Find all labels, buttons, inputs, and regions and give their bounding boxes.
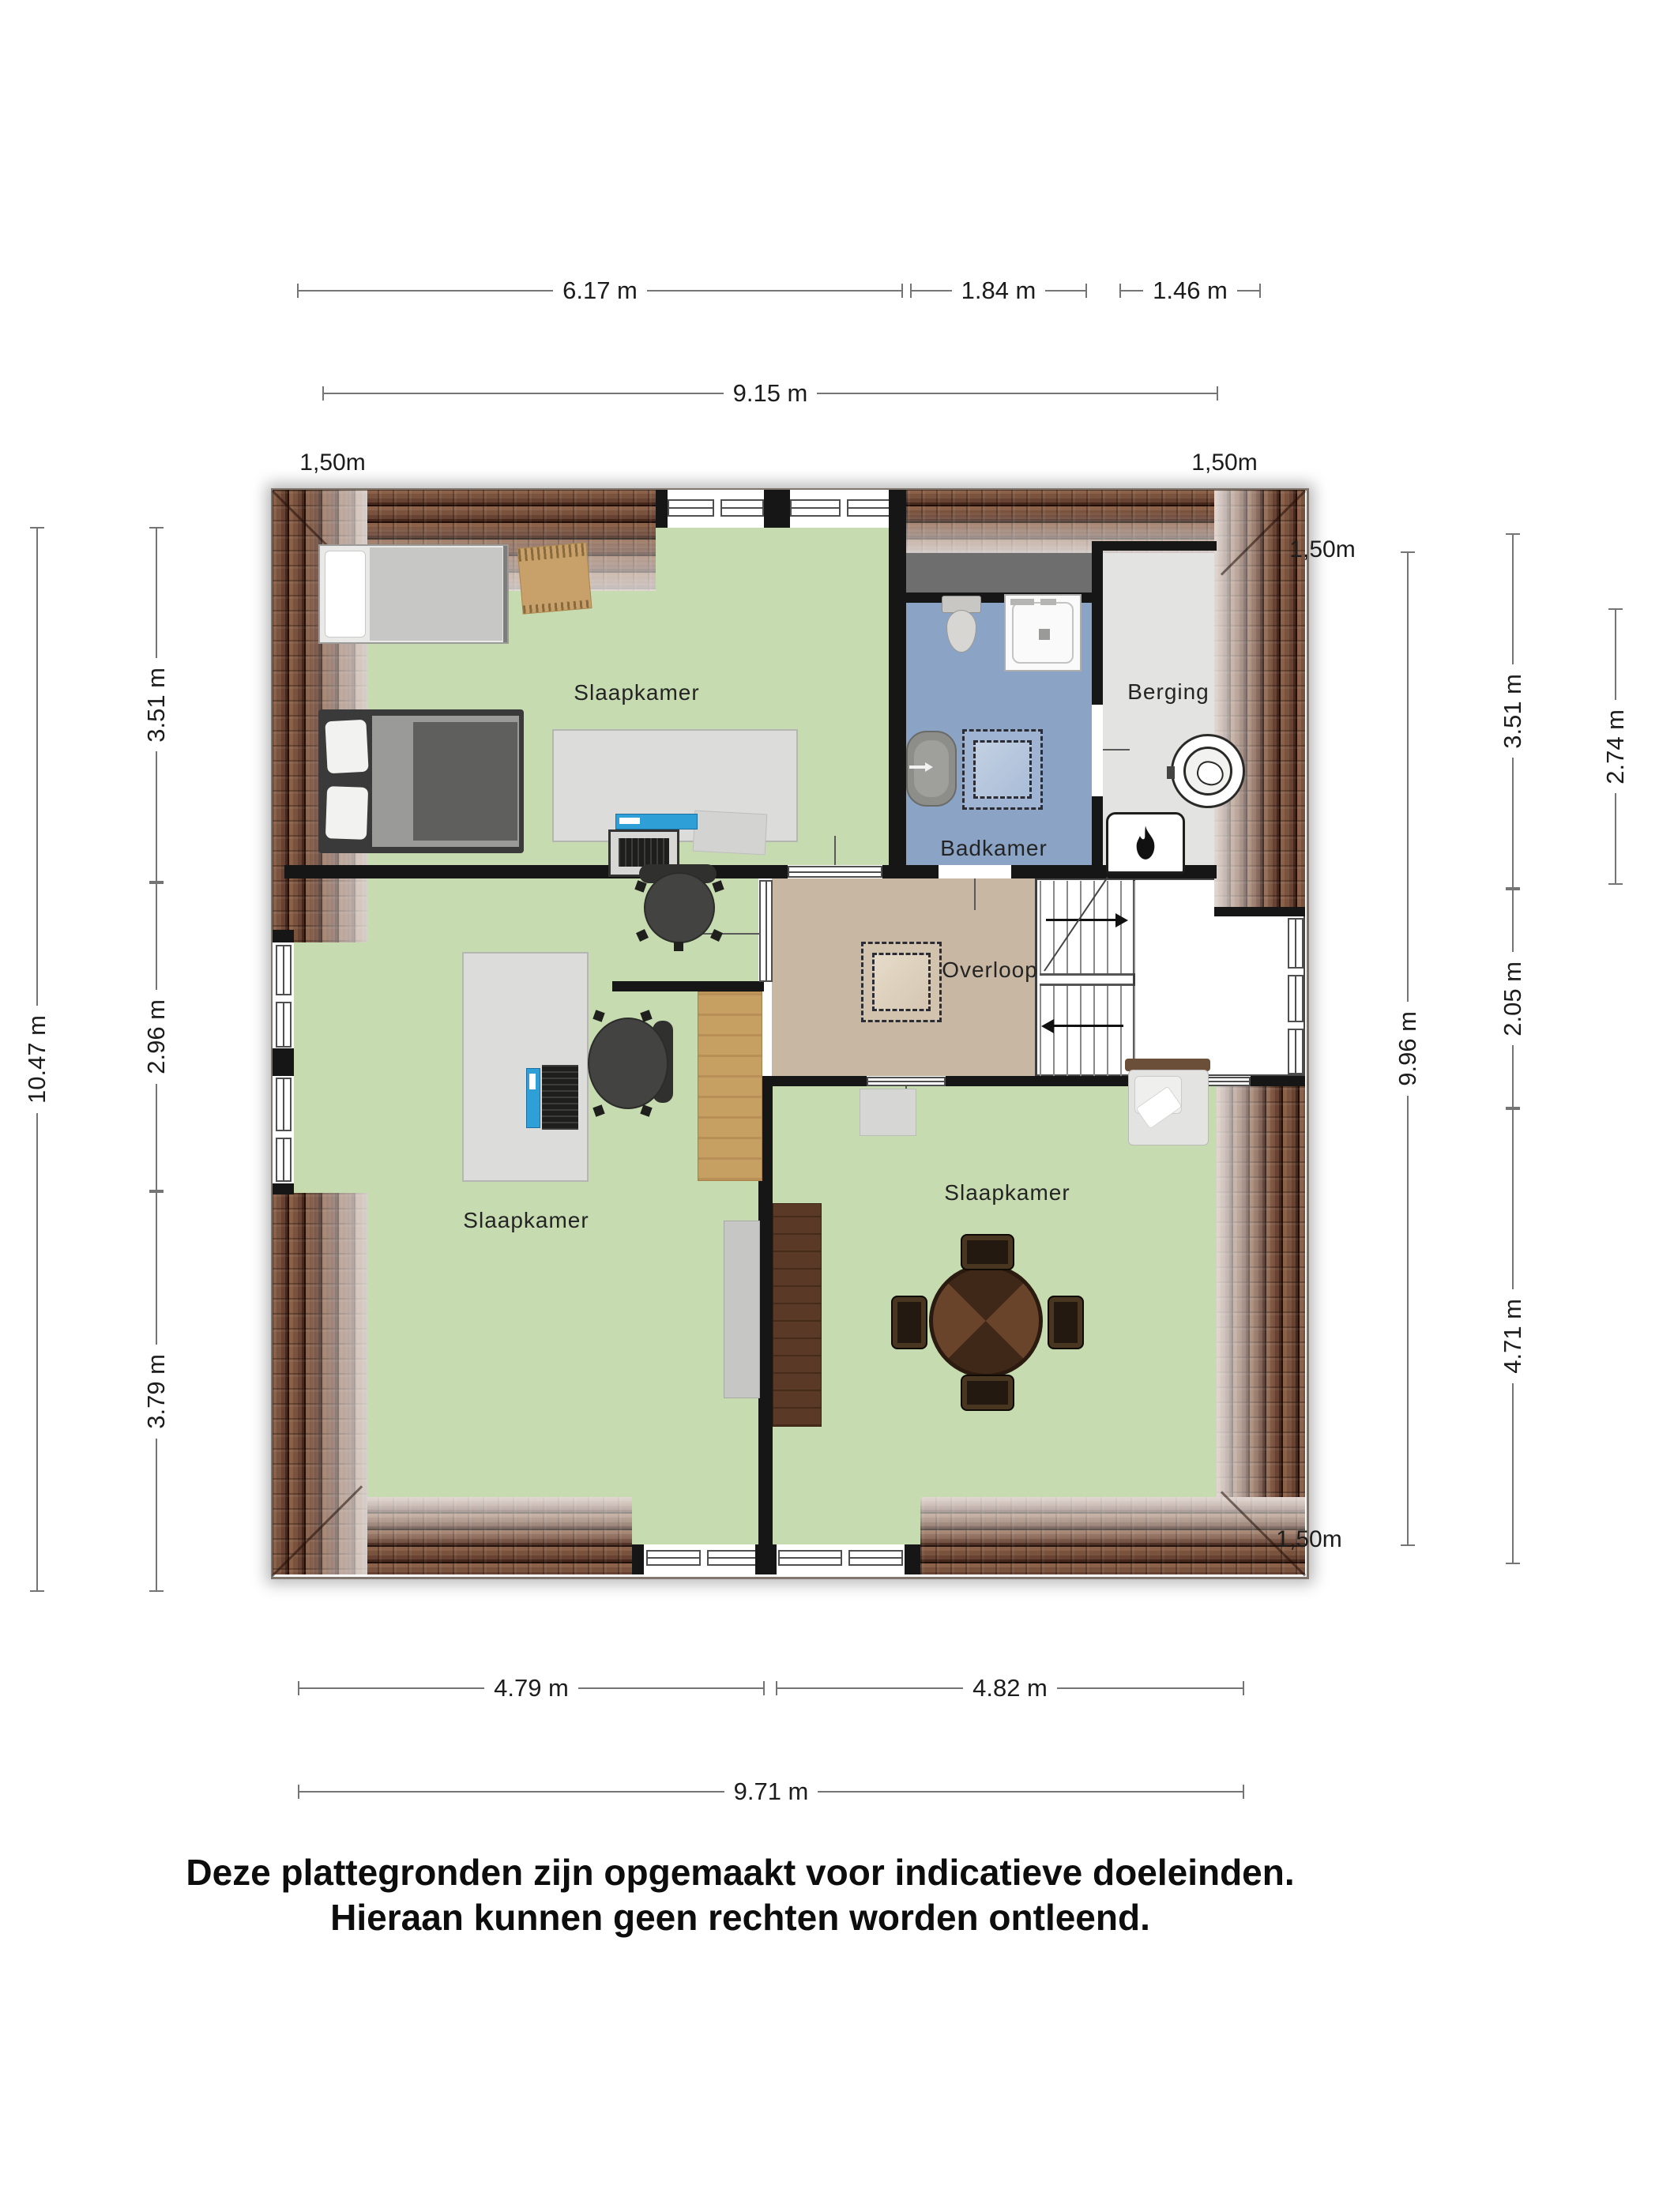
window-icon [668, 499, 764, 517]
wall-segment [889, 490, 906, 878]
single-bed-icon [318, 544, 509, 644]
wall-segment [273, 1048, 294, 1076]
window-icon [778, 1550, 903, 1566]
room-label-landing: Overloop [942, 957, 1038, 983]
wall-segment [755, 1544, 777, 1574]
dining-chair-icon [961, 1234, 1014, 1270]
office-chair-icon [644, 872, 715, 943]
washing-machine-icon [1171, 734, 1245, 808]
arrow-head-icon [1115, 913, 1128, 927]
dim-bottom-total: 9.71 m [298, 1776, 1244, 1808]
room-label-bedroom-right: Slaapkamer [944, 1180, 1070, 1206]
window-icon [1288, 918, 1303, 1074]
arrow-head-icon [1041, 1019, 1054, 1033]
dining-chair-icon [891, 1296, 927, 1349]
wall-segment [656, 490, 668, 528]
wall-segment [905, 1544, 920, 1574]
roof-window-icon [962, 729, 1043, 810]
dim-right-inner: 2.74 m [1600, 608, 1631, 885]
dim-label: 10.47 m [23, 1006, 51, 1113]
dim-label: 4.82 m [963, 1674, 1057, 1702]
wall-segment [1092, 541, 1217, 551]
stairs-down-icon [1040, 986, 1135, 1076]
dim-label: 3.51 m [142, 658, 171, 752]
disclaimer: Deze plattegronden zijn opgemaakt voor i… [108, 1850, 1372, 1940]
dim-label: 9.71 m [724, 1777, 818, 1806]
dim-label: 2.05 m [1499, 952, 1527, 1046]
door-opening [1092, 705, 1103, 796]
dim-top-2: 1.84 m [910, 275, 1087, 307]
window-icon [276, 945, 292, 1048]
double-bed-icon [318, 709, 524, 853]
door-opening [939, 865, 1011, 878]
wall-segment [632, 1544, 644, 1574]
window-icon [276, 1078, 292, 1182]
cabinet-icon [698, 991, 762, 1181]
wall-segment [1092, 551, 1103, 705]
window-icon [646, 1550, 757, 1566]
dim-right-total: 9.96 m [1392, 551, 1424, 1546]
laptop-icon [526, 1068, 540, 1128]
dim-right-2: 2.05 m [1497, 889, 1529, 1108]
dim-left-1: 3.51 m [141, 527, 172, 882]
water-heater-icon [1106, 812, 1185, 874]
roof-window-icon [861, 942, 942, 1022]
room-label-bedroom-left: Slaapkamer [463, 1208, 589, 1233]
dim-label: 2.74 m [1601, 700, 1630, 794]
wall-segment [612, 981, 764, 991]
doormat-icon [860, 1089, 916, 1136]
wall-segment [1251, 1076, 1305, 1086]
sideboard-icon [773, 1203, 822, 1427]
dim-top-1: 6.17 m [297, 275, 903, 307]
dim-label: 2.96 m [142, 990, 171, 1084]
wall-segment [758, 1076, 867, 1086]
wall-segment [273, 930, 294, 942]
dim-label: 9.15 m [724, 379, 818, 408]
door-tick [834, 836, 836, 865]
window-icon [790, 499, 891, 517]
floorplan-sheet: Slaapkamer Slaapkamer Slaapkamer Badkame… [0, 0, 1659, 2212]
monitor-icon [615, 814, 698, 829]
dim-label: 9.96 m [1394, 1002, 1422, 1096]
wardrobe-icon [724, 1221, 760, 1398]
door-tick [695, 933, 761, 935]
door-icon [867, 1077, 946, 1086]
wall-segment [764, 490, 790, 528]
dim-bottom-2: 4.82 m [776, 1672, 1244, 1704]
dim-label: 1.84 m [952, 276, 1046, 305]
stair-landing-line [1040, 984, 1133, 986]
disclaimer-line-1: Deze plattegronden zijn opgemaakt voor i… [108, 1850, 1372, 1895]
wall-segment [1214, 907, 1305, 916]
height-marker: 1,50m [299, 450, 365, 476]
door-icon [759, 880, 773, 982]
wall-segment [1092, 796, 1103, 865]
paper-stack [693, 811, 768, 856]
dim-right-1: 3.51 m [1497, 533, 1529, 889]
flame-icon [1132, 826, 1159, 862]
dining-chair-icon [961, 1375, 1014, 1411]
height-marker: 1,50m [1289, 536, 1355, 563]
height-marker: 1,50m [1191, 450, 1257, 476]
dim-label: 3.51 m [1499, 664, 1527, 758]
room-label-bedroom-top: Slaapkamer [574, 680, 699, 705]
dim-label: 1.46 m [1143, 276, 1237, 305]
dim-top-3: 1.46 m [1119, 275, 1261, 307]
keyboard-icon [619, 838, 669, 867]
dim-label: 6.17 m [553, 276, 647, 305]
dim-left-3: 3.79 m [141, 1191, 172, 1592]
door-tick [1103, 749, 1130, 750]
room-label-storage: Berging [1127, 679, 1209, 705]
dim-label: 4.79 m [484, 1674, 578, 1702]
dining-table-icon [929, 1264, 1043, 1378]
height-marker: 1,50m [1276, 1526, 1341, 1553]
dim-label: 4.71 m [1499, 1289, 1527, 1383]
office-chair-icon [588, 1018, 668, 1109]
dim-right-3: 4.71 m [1497, 1108, 1529, 1564]
dim-left-total: 10.47 m [21, 527, 53, 1592]
stair-landing-line [1040, 973, 1133, 976]
disclaimer-line-2: Hieraan kunnen geen rechten worden ontle… [108, 1895, 1372, 1940]
shower-icon [1004, 594, 1082, 671]
stair-arrow-up [1046, 919, 1119, 921]
dim-top-total: 9.15 m [322, 378, 1218, 409]
room-label-bathroom: Badkamer [940, 836, 1048, 861]
sink-icon [906, 731, 957, 807]
dim-left-2: 2.96 m [141, 882, 172, 1191]
toilet-icon [942, 596, 980, 653]
armchair-icon [1125, 1059, 1210, 1145]
dim-label: 3.79 m [142, 1345, 171, 1439]
door-icon [788, 866, 882, 878]
dim-bottom-1: 4.79 m [298, 1672, 765, 1704]
wall-segment [882, 865, 939, 878]
door-tick [974, 878, 976, 910]
stair-arrow-down [1054, 1025, 1123, 1027]
keyboard-icon [542, 1065, 578, 1130]
rug-icon [517, 542, 592, 614]
wall-segment [273, 1183, 294, 1194]
dining-chair-icon [1048, 1296, 1084, 1349]
